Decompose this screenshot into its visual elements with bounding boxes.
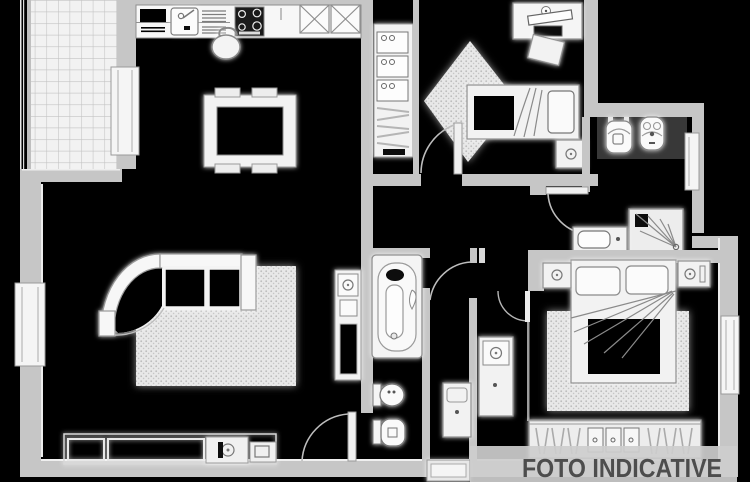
svg-text:FOTO INDICATIVE: FOTO INDICATIVE (522, 453, 722, 482)
